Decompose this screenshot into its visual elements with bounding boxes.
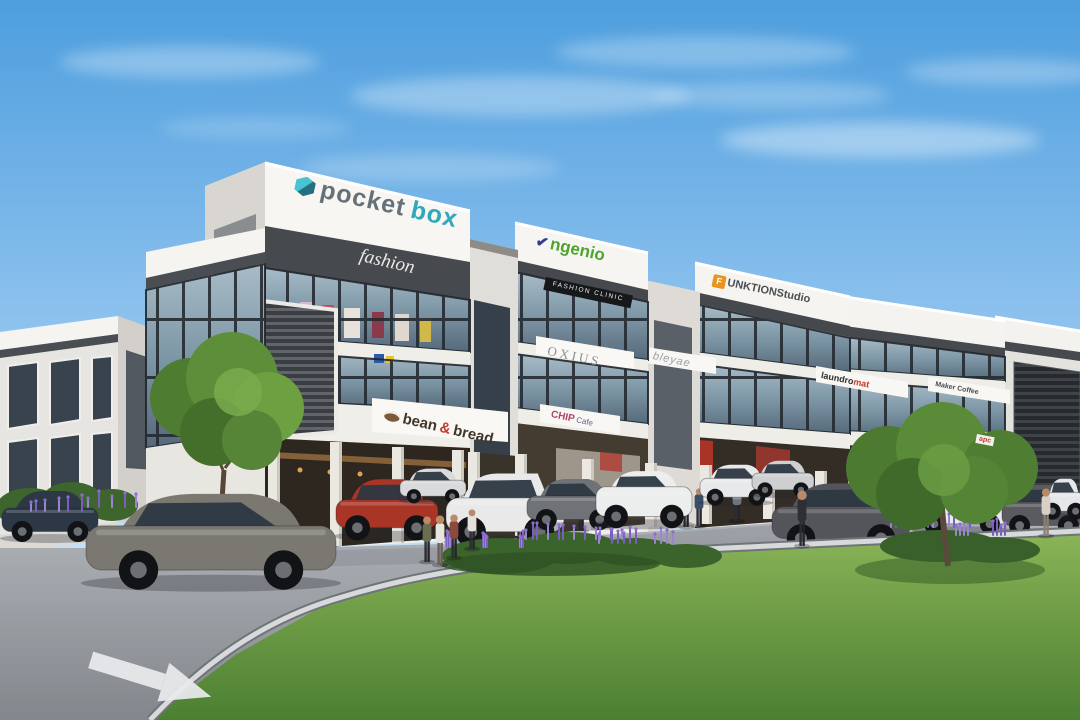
pocketbox-cube-logo-icon — [293, 174, 317, 198]
sign-ampersand: & — [438, 420, 452, 437]
funktion-logo-icon: F — [711, 274, 726, 289]
coffee-bean-logo-icon — [383, 409, 401, 422]
ngenio-leaf-logo-icon: ✔ — [534, 233, 550, 252]
exterior-render-scene: pocketbox fashion ✔ngenio FASHION CLINIC… — [0, 0, 1080, 720]
scene-canvas — [0, 0, 1080, 720]
